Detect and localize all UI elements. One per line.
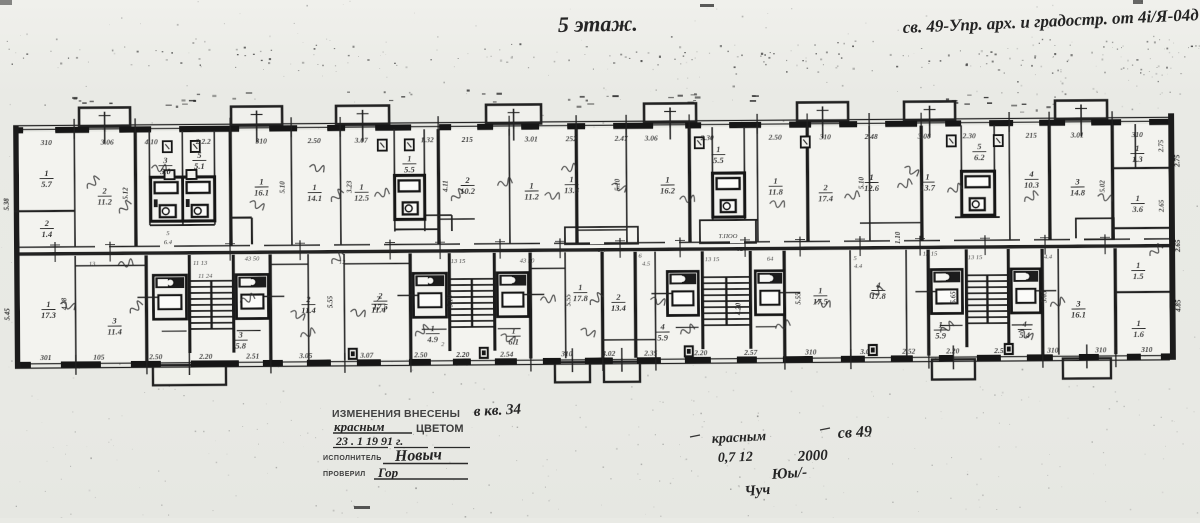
svg-text:5.55: 5.55 xyxy=(794,292,802,305)
svg-text:3.06: 3.06 xyxy=(644,134,658,143)
svg-text:3.05: 3.05 xyxy=(298,351,312,360)
svg-text:2.57: 2.57 xyxy=(743,348,757,357)
svg-text:1.5: 1.5 xyxy=(1133,271,1144,281)
svg-text:1: 1 xyxy=(1136,318,1140,328)
svg-text:215: 215 xyxy=(461,135,474,144)
svg-text:2.20: 2.20 xyxy=(455,350,469,359)
svg-text:310: 310 xyxy=(1046,346,1059,355)
svg-text:14.8: 14.8 xyxy=(1070,187,1086,197)
svg-text:301: 301 xyxy=(39,353,51,362)
svg-text:2: 2 xyxy=(377,291,383,301)
svg-text:2.54: 2.54 xyxy=(499,350,513,359)
svg-text:Чуч: Чуч xyxy=(744,482,771,500)
svg-text:3: 3 xyxy=(1074,176,1080,186)
svg-text:16.1: 16.1 xyxy=(254,187,269,197)
svg-text:6.2: 6.2 xyxy=(974,152,985,162)
svg-text:2.75: 2.75 xyxy=(1157,139,1165,153)
svg-text:11.8: 11.8 xyxy=(768,187,783,197)
svg-text:5.10: 5.10 xyxy=(279,181,287,194)
svg-text:1.10: 1.10 xyxy=(894,231,902,244)
svg-text:2.65: 2.65 xyxy=(1174,239,1182,253)
svg-text:3: 3 xyxy=(162,155,168,165)
svg-text:4.4: 4.4 xyxy=(854,263,863,270)
svg-text:2.35: 2.35 xyxy=(643,349,657,358)
svg-text:2.30: 2.30 xyxy=(962,131,976,140)
svg-text:10.3: 10.3 xyxy=(1024,180,1040,190)
svg-text:1: 1 xyxy=(44,168,48,178)
svg-text:Гор: Гор xyxy=(377,465,399,480)
svg-text:3.02: 3.02 xyxy=(601,349,615,358)
svg-text:красным: красным xyxy=(711,429,767,447)
svg-text:23 . 1 19 91 г.: 23 . 1 19 91 г. xyxy=(335,434,403,448)
svg-text:4.85: 4.85 xyxy=(1174,299,1182,313)
svg-text:2.30: 2.30 xyxy=(700,133,714,142)
svg-text:2.75: 2.75 xyxy=(1173,154,1181,168)
svg-text:1: 1 xyxy=(259,176,263,186)
svg-text:12.6: 12.6 xyxy=(864,183,880,193)
svg-text:2.50: 2.50 xyxy=(148,352,162,361)
svg-text:6.4: 6.4 xyxy=(164,239,173,246)
svg-text:Юы/-: Юы/- xyxy=(770,465,807,484)
svg-text:1.3: 1.3 xyxy=(1132,154,1143,164)
svg-text:16.1: 16.1 xyxy=(1071,309,1086,319)
svg-text:11.4: 11.4 xyxy=(107,327,121,337)
svg-text:2.50: 2.50 xyxy=(307,136,321,145)
svg-text:11.2: 11.2 xyxy=(524,191,539,201)
svg-text:11.2: 11.2 xyxy=(97,197,112,207)
svg-text:4: 4 xyxy=(1021,319,1026,329)
svg-text:1: 1 xyxy=(578,282,582,292)
svg-text:3: 3 xyxy=(238,330,244,340)
svg-text:310: 310 xyxy=(819,132,832,141)
svg-text:1: 1 xyxy=(665,174,669,184)
svg-text:1: 1 xyxy=(46,299,50,309)
svg-text:в кв. 34: в кв. 34 xyxy=(473,402,522,420)
svg-text:5.12: 5.12 xyxy=(122,187,130,200)
svg-text:2.52: 2.52 xyxy=(901,347,915,356)
svg-text:12: 12 xyxy=(737,246,744,253)
svg-text:Новыч: Новыч xyxy=(394,446,443,465)
svg-text:2.20: 2.20 xyxy=(693,348,707,357)
svg-text:13.7: 13.7 xyxy=(920,183,936,193)
svg-text:4.20: 4.20 xyxy=(734,302,742,316)
svg-text:2.20: 2.20 xyxy=(945,346,959,355)
svg-text:3.07: 3.07 xyxy=(359,351,373,360)
svg-text:ИСПОЛНИТЕЛЬ: ИСПОЛНИТЕЛЬ xyxy=(323,455,382,462)
svg-text:2.47: 2.47 xyxy=(614,134,628,143)
svg-text:4.9: 4.9 xyxy=(426,334,438,344)
svg-text:5.8: 5.8 xyxy=(235,341,246,351)
svg-text:3.01: 3.01 xyxy=(1070,130,1084,139)
svg-text:2.2.2: 2.2.2 xyxy=(195,137,211,146)
svg-text:1.4: 1.4 xyxy=(42,229,53,239)
svg-text:3.06: 3.06 xyxy=(100,138,114,147)
svg-text:5.4: 5.4 xyxy=(598,247,607,254)
svg-text:4: 4 xyxy=(1028,169,1033,179)
svg-text:1: 1 xyxy=(1136,260,1140,270)
svg-text:310: 310 xyxy=(804,347,817,356)
svg-text:5.5: 5.5 xyxy=(404,164,415,174)
svg-text:4.4: 4.4 xyxy=(1044,254,1053,261)
svg-text:1: 1 xyxy=(529,180,533,190)
svg-text:13 15: 13 15 xyxy=(923,251,938,258)
svg-text:11 24: 11 24 xyxy=(198,273,213,280)
svg-text:105: 105 xyxy=(93,353,105,362)
svg-text:310: 310 xyxy=(40,138,53,147)
svg-text:2.65: 2.65 xyxy=(1158,199,1166,213)
svg-text:14.1: 14.1 xyxy=(307,193,322,203)
svg-text:215: 215 xyxy=(1025,131,1038,140)
svg-text:2.51: 2.51 xyxy=(245,351,259,360)
svg-text:1: 1 xyxy=(430,323,434,333)
svg-text:4.10: 4.10 xyxy=(144,137,158,146)
svg-text:5.55: 5.55 xyxy=(326,295,334,308)
svg-text:17.3: 17.3 xyxy=(41,310,57,320)
svg-text:1: 1 xyxy=(511,326,515,336)
svg-text:43 50: 43 50 xyxy=(245,255,260,262)
svg-text:1: 1 xyxy=(1135,143,1139,153)
svg-text:3.07: 3.07 xyxy=(354,136,368,145)
svg-text:3: 3 xyxy=(111,316,117,326)
svg-text:64: 64 xyxy=(767,256,774,263)
svg-text:13.4: 13.4 xyxy=(611,303,626,313)
svg-text:13 15: 13 15 xyxy=(705,256,720,263)
svg-text:0,7 12: 0,7 12 xyxy=(718,450,754,466)
svg-text:17.8: 17.8 xyxy=(573,293,589,303)
svg-text:4.11: 4.11 xyxy=(442,180,450,193)
svg-text:13.8: 13.8 xyxy=(564,185,580,195)
svg-text:2: 2 xyxy=(305,294,311,304)
svg-text:5 этаж.: 5 этаж. xyxy=(558,11,638,37)
svg-text:Т.ПОО: Т.ПОО xyxy=(718,233,737,240)
svg-text:1: 1 xyxy=(407,153,411,163)
svg-text:5.65: 5.65 xyxy=(949,291,957,304)
svg-text:2: 2 xyxy=(101,186,107,196)
svg-text:5.55: 5.55 xyxy=(564,294,572,307)
svg-text:43 50: 43 50 xyxy=(520,257,535,264)
svg-text:1: 1 xyxy=(1136,193,1140,203)
svg-text:3.23: 3.23 xyxy=(346,180,354,194)
svg-text:13: 13 xyxy=(89,261,96,268)
svg-text:310: 310 xyxy=(1131,130,1144,139)
svg-text:5.38: 5.38 xyxy=(3,198,11,211)
svg-text:5.10: 5.10 xyxy=(858,176,866,189)
svg-text:1: 1 xyxy=(359,182,363,192)
svg-text:12.5: 12.5 xyxy=(354,193,370,203)
svg-text:1: 1 xyxy=(716,144,720,154)
svg-text:3.6: 3.6 xyxy=(1131,204,1143,214)
svg-text:5.65: 5.65 xyxy=(1040,290,1048,303)
svg-text:17.5: 17.5 xyxy=(373,302,389,312)
svg-text:2: 2 xyxy=(822,182,828,192)
svg-text:св 49: св 49 xyxy=(837,423,872,442)
svg-text:2.20: 2.20 xyxy=(198,352,212,361)
svg-text:3: 3 xyxy=(1075,298,1081,308)
svg-text:16.2: 16.2 xyxy=(660,185,676,195)
svg-text:13 15: 13 15 xyxy=(968,254,983,261)
svg-text:1.32: 1.32 xyxy=(421,135,434,144)
svg-text:1: 1 xyxy=(312,182,316,192)
svg-text:1: 1 xyxy=(773,176,777,186)
svg-text:310: 310 xyxy=(255,136,268,145)
svg-text:2: 2 xyxy=(615,292,621,302)
svg-text:310: 310 xyxy=(1094,345,1107,354)
svg-text:красным: красным xyxy=(334,419,385,434)
svg-text:1: 1 xyxy=(569,174,573,184)
svg-text:13 15: 13 15 xyxy=(451,258,466,265)
svg-text:5.02: 5.02 xyxy=(1099,180,1107,193)
svg-text:2.48: 2.48 xyxy=(864,132,878,141)
svg-text:3.08: 3.08 xyxy=(917,132,931,141)
svg-text:5.9: 5.9 xyxy=(657,332,668,342)
svg-text:1: 1 xyxy=(869,172,873,182)
svg-text:5.10: 5.10 xyxy=(446,294,454,307)
svg-text:17.4: 17.4 xyxy=(818,193,833,203)
svg-text:310: 310 xyxy=(560,349,573,358)
svg-text:310: 310 xyxy=(1140,345,1153,354)
svg-text:1: 1 xyxy=(925,172,929,182)
svg-text:5.1: 5.1 xyxy=(194,161,205,171)
svg-text:ПРОВЕРИЛ: ПРОВЕРИЛ xyxy=(323,471,366,478)
svg-text:11 13: 11 13 xyxy=(193,260,208,267)
svg-text:4.5: 4.5 xyxy=(642,261,651,268)
svg-text:ЦВЕТОМ: ЦВЕТОМ xyxy=(416,423,463,435)
svg-text:252: 252 xyxy=(565,134,578,143)
svg-text:2: 2 xyxy=(464,175,470,185)
svg-text:5.45: 5.45 xyxy=(3,308,11,321)
svg-text:2: 2 xyxy=(44,218,50,228)
svg-text:1: 1 xyxy=(818,285,822,295)
svg-text:4: 4 xyxy=(659,322,664,332)
svg-text:2.50: 2.50 xyxy=(768,133,782,142)
svg-text:2.50: 2.50 xyxy=(413,350,427,359)
svg-text:2000: 2000 xyxy=(796,447,828,465)
svg-text:1.6: 1.6 xyxy=(1133,329,1144,339)
svg-text:5.7: 5.7 xyxy=(41,179,52,189)
svg-text:5.5: 5.5 xyxy=(713,155,724,165)
svg-text:3.01: 3.01 xyxy=(524,134,538,143)
